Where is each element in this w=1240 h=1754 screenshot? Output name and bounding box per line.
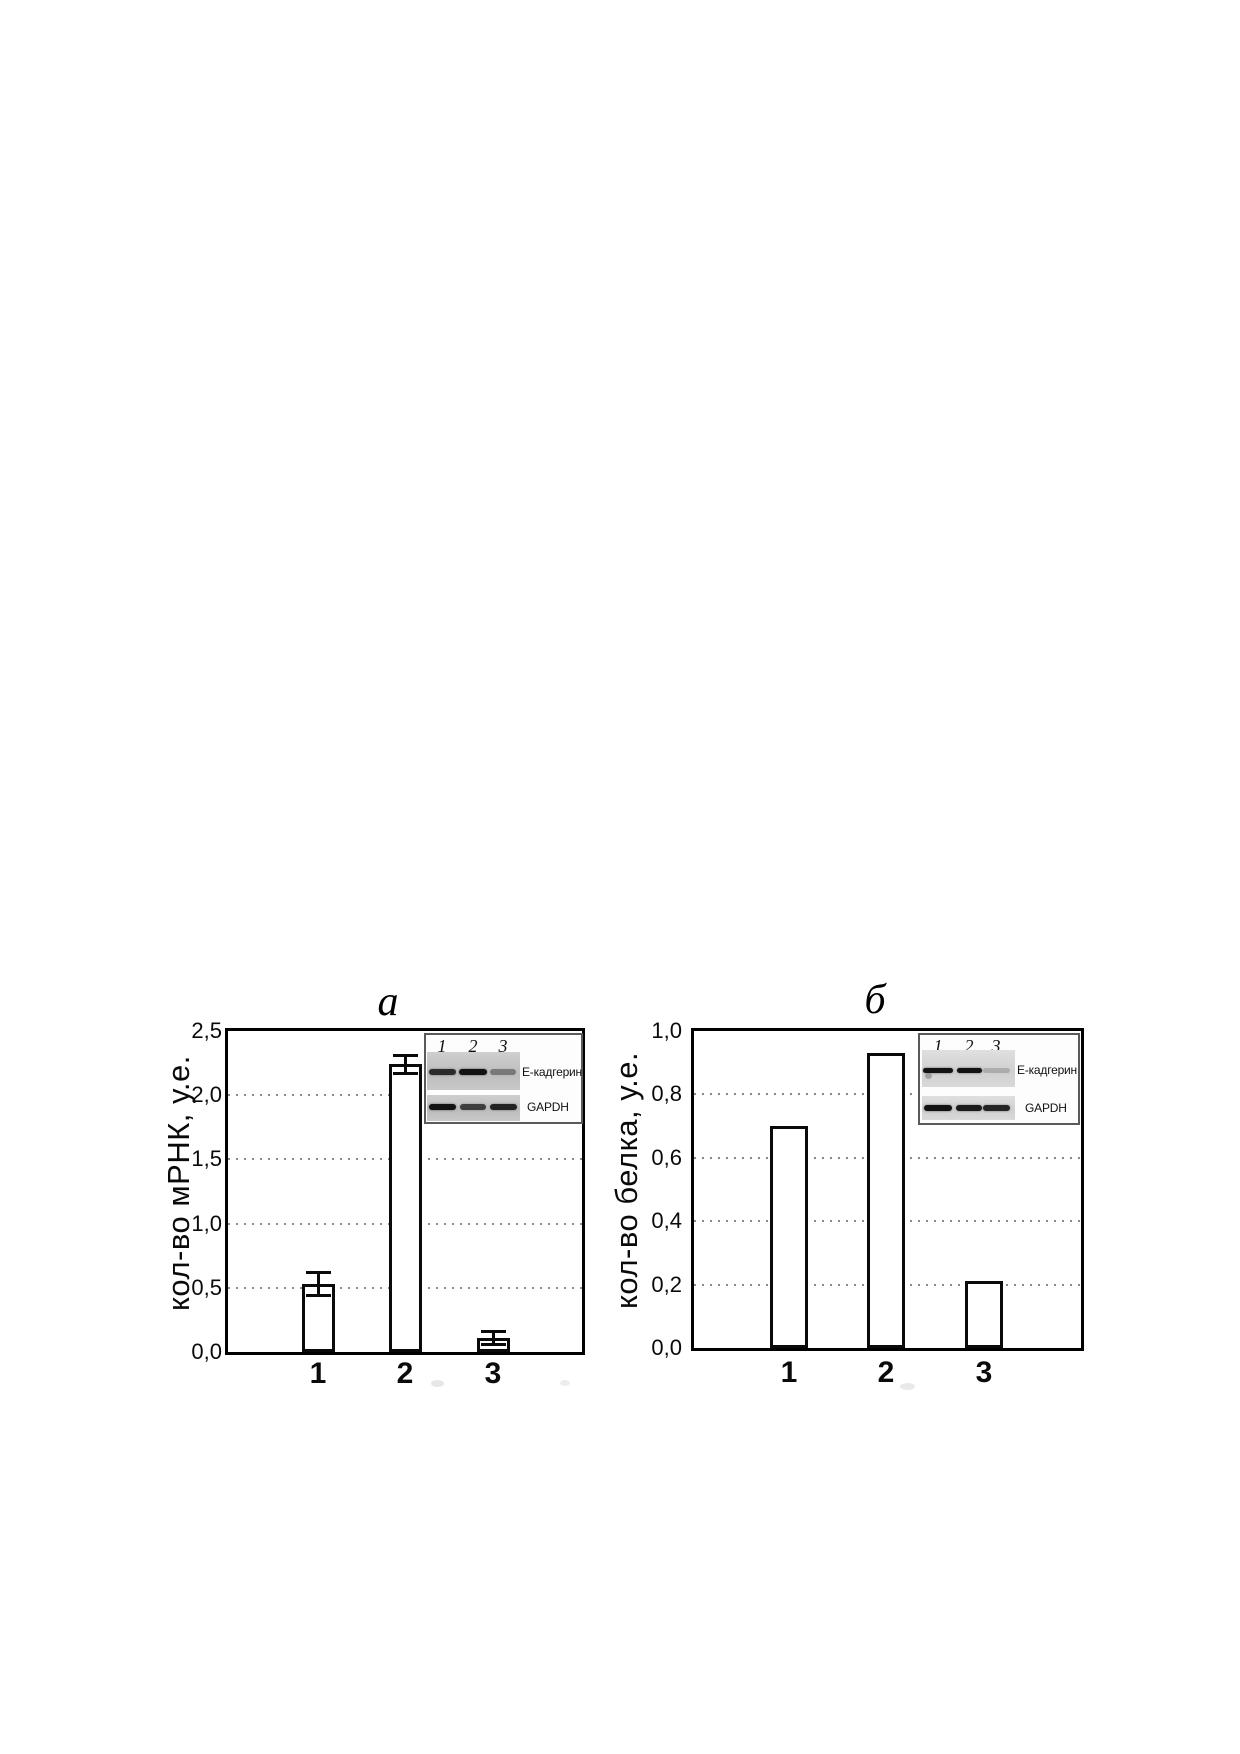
gel-strip-e-cadherin: [922, 1050, 1015, 1087]
gel-band-lane-3: [983, 1068, 1010, 1073]
panel-b-title: б: [775, 979, 975, 1021]
y-tick-label-0,6: 0,6: [592, 1147, 682, 1169]
x-tick-label-1: 1: [757, 1357, 821, 1389]
gel-band-lane-2: [460, 1104, 486, 1110]
y-tick-label-1,0: 1,0: [132, 1213, 222, 1235]
y-tick-label-0,2: 0,2: [592, 1274, 682, 1296]
gel-band-lane-2: [957, 1068, 982, 1073]
gel-band-lane-3: [490, 1104, 517, 1110]
scan-artifact: [431, 1380, 444, 1387]
x-tick-label-1: 1: [286, 1358, 350, 1390]
gel-band-lane-2: [956, 1105, 982, 1111]
panel-a-title: a: [288, 981, 488, 1023]
page: { "figure": { "kind": "two-panel bar fig…: [0, 0, 1240, 1754]
scan-artifact: [560, 1380, 570, 1386]
gel-row-label-e-cadherin: Е-кадгерин: [522, 1066, 582, 1078]
error-bar-cap-bottom: [306, 1294, 331, 1297]
error-bar-category-1: [306, 1271, 331, 1297]
gel-band-lane-1: [924, 1105, 952, 1111]
error-bar-cap-bottom: [481, 1343, 506, 1346]
gel-inset: 123Е-кадгеринGAPDH: [424, 1033, 583, 1124]
y-tick-label-1,5: 1,5: [132, 1148, 222, 1170]
gel-band-lane-2: [459, 1069, 487, 1075]
gel-band-lane-3: [490, 1069, 516, 1075]
scan-artifact: [900, 1383, 915, 1390]
gel-band-lane-1: [429, 1069, 456, 1075]
x-tick-label-3: 3: [461, 1358, 525, 1390]
x-tick-label-3: 3: [952, 1357, 1016, 1389]
bar-category-1: [770, 1126, 808, 1348]
error-bar-cap-top: [393, 1054, 418, 1057]
bar-category-2: [867, 1053, 905, 1348]
gel-band-lane-1: [429, 1104, 456, 1110]
y-tick-label-1,0: 1,0: [592, 1020, 682, 1042]
error-bar-category-3: [481, 1330, 506, 1345]
gel-row-label-e-cadherin: Е-кадгерин: [1017, 1064, 1077, 1076]
gel-row-label-gapdh: GAPDH: [1025, 1102, 1067, 1114]
y-tick-label-0,4: 0,4: [592, 1210, 682, 1232]
gel-inset: 123Е-кадгеринGAPDH: [918, 1033, 1080, 1125]
y-tick-label-2,0: 2,0: [132, 1084, 222, 1106]
y-tick-label-0,0: 0,0: [592, 1337, 682, 1359]
gel-strip-gapdh: [922, 1096, 1015, 1120]
bar-category-3: [965, 1281, 1003, 1348]
y-tick-label-2,5: 2,5: [132, 1020, 222, 1042]
error-bar-cap-top: [481, 1330, 506, 1333]
gel-row-label-gapdh: GAPDH: [527, 1101, 569, 1113]
error-bar-cap-bottom: [393, 1072, 418, 1075]
x-tick-label-2: 2: [373, 1358, 437, 1390]
bar-category-2: [389, 1064, 422, 1352]
gel-band-lane-3: [983, 1105, 1010, 1111]
y-tick-label-0,8: 0,8: [592, 1083, 682, 1105]
scan-artifact: [925, 1073, 932, 1079]
error-bar-category-2: [393, 1054, 418, 1075]
y-tick-label-0,5: 0,5: [132, 1277, 222, 1299]
y-tick-label-0,0: 0,0: [132, 1341, 222, 1363]
gel-strip-e-cadherin: [427, 1052, 520, 1090]
gel-strip-gapdh: [427, 1095, 520, 1121]
error-bar-cap-top: [306, 1271, 331, 1274]
